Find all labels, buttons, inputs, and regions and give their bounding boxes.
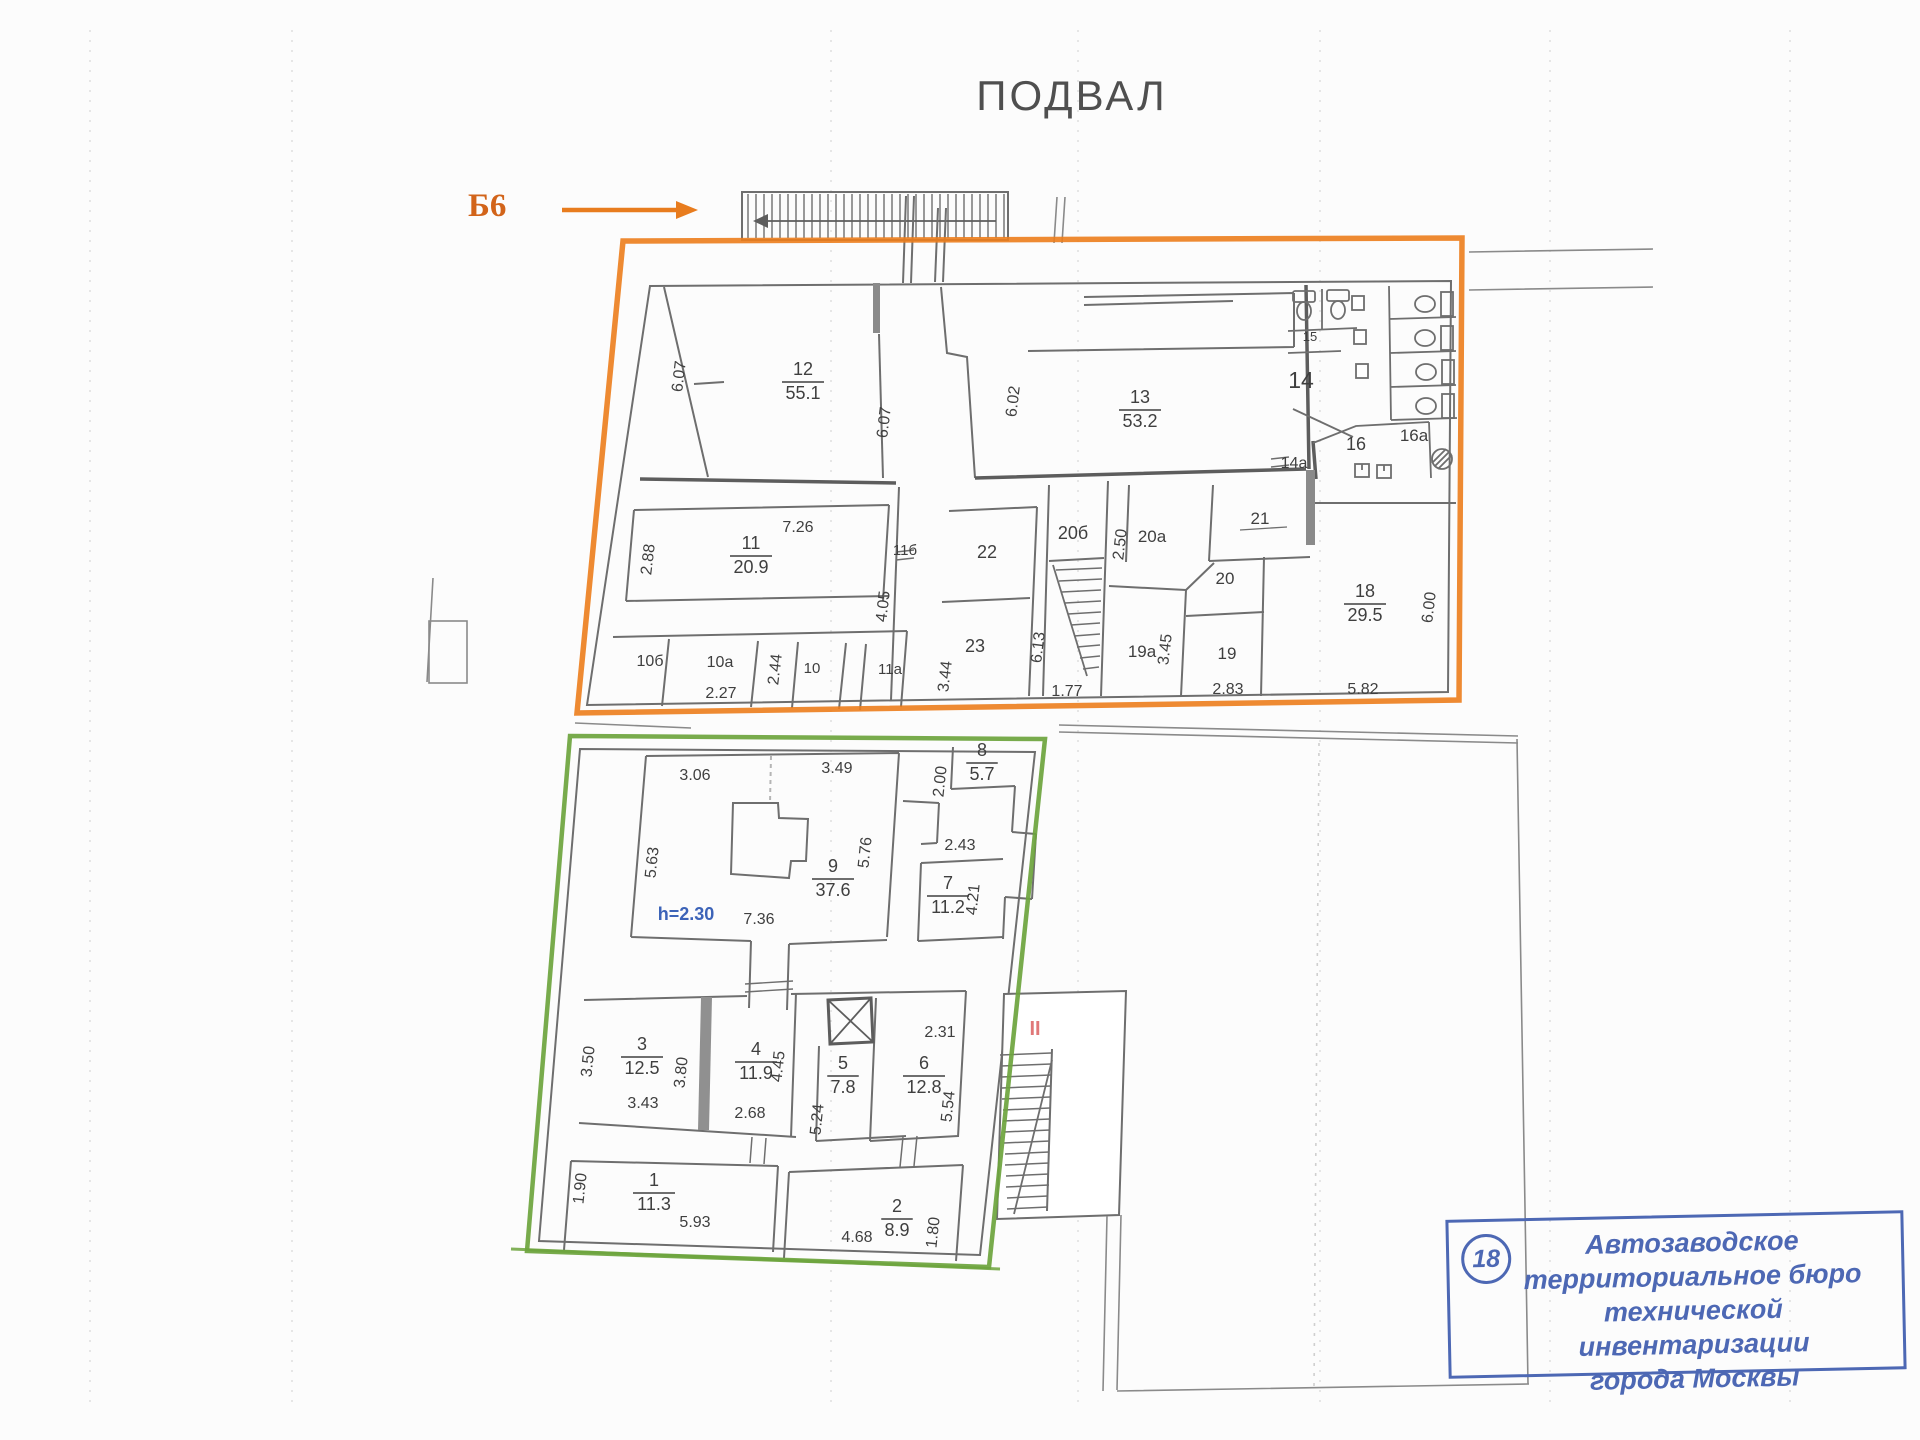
dimension-label: 6.13 — [1028, 631, 1049, 664]
dimension-label: 2.88 — [638, 543, 659, 576]
room-number: 21 — [1251, 509, 1270, 528]
room-number: 22 — [977, 542, 997, 562]
dimension-label: 3.80 — [671, 1056, 691, 1089]
b6-arrow-icon — [562, 201, 698, 219]
thick-partition-wall — [698, 997, 712, 1130]
entrance-staircase — [742, 192, 1008, 240]
urinal-icon — [1355, 464, 1391, 478]
shower-icon — [1432, 449, 1452, 469]
room-number: 1 — [649, 1170, 659, 1190]
room-number: 10б — [637, 653, 664, 670]
room-area: 20.9 — [733, 557, 768, 577]
dimension-label: 1.77 — [1051, 683, 1082, 700]
door-frame-icon — [1354, 330, 1366, 344]
room-area: 12.8 — [906, 1077, 941, 1097]
dimension-label: 5.93 — [679, 1214, 710, 1231]
dimension-label: 2.27 — [705, 685, 736, 702]
room-number: 15 — [1303, 329, 1317, 344]
dimension-label: 1.80 — [923, 1216, 943, 1249]
room-number: 11б — [893, 542, 917, 559]
dimension-label: 5.54 — [938, 1090, 958, 1123]
room-number: 23 — [965, 636, 985, 656]
dimension-label: 2.50 — [1110, 528, 1131, 561]
section-mark: II — [1029, 1018, 1040, 1040]
room-area: 8.9 — [884, 1220, 909, 1240]
dimension-label: 4.45 — [768, 1050, 788, 1083]
upper-plan-thick-walls — [640, 285, 1316, 483]
dimension-label: 2.68 — [734, 1105, 765, 1122]
dimension-label: 2.00 — [930, 765, 950, 798]
room-number: 20a — [1138, 527, 1167, 546]
room-number: 6 — [919, 1053, 929, 1073]
room-area: 55.1 — [785, 383, 820, 403]
dimension-label: 3.49 — [821, 760, 852, 777]
room-area: 53.2 — [1122, 411, 1157, 431]
bti-stamp: 18 Автозаводское территориальное бюро те… — [1445, 1210, 1906, 1379]
dimension-label: 4.68 — [841, 1229, 872, 1246]
room-area: 37.6 — [815, 880, 850, 900]
dimension-label: 3.50 — [578, 1045, 598, 1078]
room-number: 16a — [1400, 426, 1429, 445]
room-number: 8 — [977, 740, 987, 760]
dimension-label: 2.43 — [944, 837, 975, 854]
dimension-label: 3.45 — [1155, 633, 1176, 666]
dimension-label: 3.06 — [679, 767, 710, 784]
wc-fixture-icon — [1293, 290, 1454, 418]
room-number: 7 — [943, 873, 953, 893]
upper-plan-walls — [587, 196, 1456, 710]
room-number: 19 — [1218, 644, 1237, 663]
room-area: 7.8 — [830, 1077, 855, 1097]
dimension-label: 6.07 — [874, 406, 895, 439]
room-number: 5 — [838, 1053, 848, 1073]
room-number: 11a — [878, 661, 903, 678]
elevator-shaft — [828, 998, 873, 1044]
dimension-label: 3.44 — [935, 660, 956, 693]
dimension-label: 2.44 — [765, 653, 786, 686]
lower-plan-walls — [539, 747, 1036, 1261]
room-number: 19a — [1128, 642, 1157, 661]
dimension-label: 6.02 — [1003, 385, 1024, 418]
dimension-label: 4.21 — [963, 883, 983, 916]
room-number: 3 — [637, 1034, 647, 1054]
wall-fill-segments — [873, 283, 1315, 545]
dimension-label: 5.63 — [642, 846, 662, 879]
room-number: 18 — [1355, 581, 1375, 601]
room-area: 11.3 — [637, 1194, 671, 1214]
dimension-label: 3.43 — [627, 1095, 658, 1112]
room-number: 10a — [707, 654, 734, 671]
room-area: 29.5 — [1347, 605, 1382, 625]
dimension-label: 6.00 — [1419, 591, 1440, 624]
room-number: 9 — [828, 856, 838, 876]
room-number: 12 — [793, 359, 813, 379]
dimension-label: 7.36 — [743, 911, 774, 928]
room-number: 13 — [1130, 387, 1150, 407]
room-area: 12.5 — [624, 1058, 659, 1078]
room-number: 4 — [751, 1039, 761, 1059]
dimension-label: 5.24 — [807, 1103, 827, 1136]
room-number: 16 — [1346, 434, 1366, 454]
room-number: 20б — [1058, 523, 1088, 543]
dimension-label: 1.90 — [570, 1172, 590, 1205]
dimension-label: 5.82 — [1347, 681, 1378, 698]
door-frame-icon — [1356, 364, 1368, 378]
exterior-staircase — [997, 991, 1126, 1391]
dimension-label: 2.31 — [924, 1024, 955, 1041]
room-number: 2 — [892, 1196, 902, 1216]
dimension-label: 7.26 — [782, 519, 813, 536]
dimension-label: 2.83 — [1212, 681, 1243, 698]
dimension-label: 4.05 — [873, 590, 894, 623]
room-number: 10 — [804, 660, 821, 677]
stamp-text: Автозаводское территориальное бюро техни… — [1489, 1221, 1898, 1399]
dimension-label: 5.76 — [855, 836, 875, 869]
room-number: 14 — [1288, 367, 1314, 393]
room-number: 14a — [1281, 455, 1308, 472]
room-number: 11 — [742, 533, 761, 553]
stamp-line: технической инвентаризации — [1490, 1289, 1897, 1365]
room-number: 20 — [1216, 569, 1235, 588]
door-frame-icon — [1352, 296, 1364, 310]
room-area: 5.7 — [969, 764, 994, 784]
height-note: h=2.30 — [658, 904, 715, 924]
room-area: 11.2 — [931, 897, 965, 917]
